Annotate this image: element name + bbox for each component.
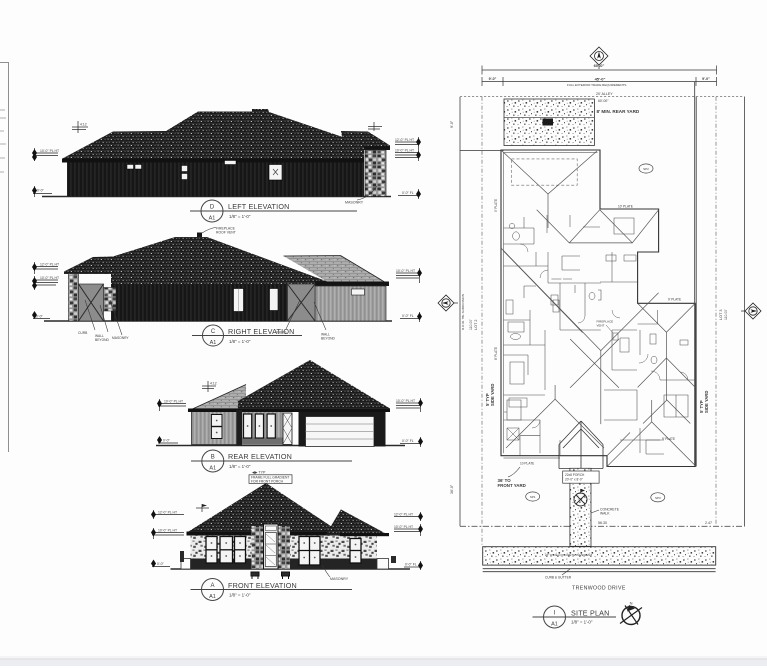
svg-text:60'-0": 60'-0" xyxy=(594,63,605,68)
svg-text:10 PLATE: 10 PLATE xyxy=(520,462,534,466)
svg-text:A1: A1 xyxy=(209,594,216,600)
svg-text:FRONT YARD: FRONT YARD xyxy=(498,483,526,488)
svg-text:A1: A1 xyxy=(209,216,216,222)
svg-text:9' PLATE: 9' PLATE xyxy=(668,298,681,302)
svg-text:10'-0" PL HT: 10'-0" PL HT xyxy=(40,149,59,153)
svg-text:0'-0" FL: 0'-0" FL xyxy=(402,439,414,443)
svg-text:110.00': 110.00' xyxy=(724,309,728,320)
svg-text:FULL EXTERIOR TRADE REQUIREMEN: FULL EXTERIOR TRADE REQUIREMENTS xyxy=(567,83,626,87)
svg-text:REAR ELEVATION: REAR ELEVATION xyxy=(228,452,292,461)
svg-text:4:12: 4:12 xyxy=(80,123,87,127)
svg-text:10'-0" PL HT: 10'-0" PL HT xyxy=(394,525,413,529)
svg-text:BEYOND: BEYOND xyxy=(95,338,110,342)
svg-text:10'-0" PL HT: 10'-0" PL HT xyxy=(40,276,59,280)
svg-text:10'-0" PL HT: 10'-0" PL HT xyxy=(396,269,415,273)
svg-text:CURB & GUTTER: CURB & GUTTER xyxy=(545,576,572,580)
svg-text:WALK: WALK xyxy=(600,512,610,516)
svg-text:2.47: 2.47 xyxy=(705,521,712,525)
svg-text:8' PLATE: 8' PLATE xyxy=(494,347,498,360)
svg-text:0'-0" FL: 0'-0" FL xyxy=(405,563,417,567)
svg-text:SIDE YARD: SIDE YARD xyxy=(490,384,495,406)
svg-text:N: N xyxy=(630,601,633,606)
svg-text:10'-0" PL HT: 10'-0" PL HT xyxy=(395,149,414,153)
svg-text:9'-0": 9'-0" xyxy=(450,120,454,128)
svg-text:1/8" = 1'-0": 1/8" = 1'-0" xyxy=(229,339,251,344)
svg-text:36'-0": 36'-0" xyxy=(450,484,454,494)
svg-text:1/8" = 1'-0": 1/8" = 1'-0" xyxy=(229,214,251,219)
svg-text:45'-0": 45'-0" xyxy=(595,77,606,82)
svg-text:MASONRY: MASONRY xyxy=(112,336,129,340)
svg-text:R.O.W. TBL SUBDIVISION: R.O.W. TBL SUBDIVISION xyxy=(461,294,465,330)
svg-text:9' PLATE: 9' PLATE xyxy=(662,437,675,441)
svg-text:20'-0" x 8'-0": 20'-0" x 8'-0" xyxy=(565,478,583,482)
svg-text:D: D xyxy=(210,205,215,211)
svg-text:MASONRY: MASONRY xyxy=(345,201,364,205)
svg-text:10'-0" PL HT: 10'-0" PL HT xyxy=(396,399,415,403)
svg-text:C: C xyxy=(211,329,216,335)
svg-text:1/8" = 1'-0": 1/8" = 1'-0" xyxy=(571,620,593,625)
svg-text:SIDE YARD: SIDE YARD xyxy=(704,391,709,413)
svg-text:20' ALLEY: 20' ALLEY xyxy=(596,92,613,96)
svg-text:9' PLATE: 9' PLATE xyxy=(494,199,498,212)
svg-text:A1: A1 xyxy=(551,622,558,628)
svg-text:ROOF VENT: ROOF VENT xyxy=(216,231,236,235)
svg-text:TRENWOOD DRIVE: TRENWOOD DRIVE xyxy=(572,586,626,592)
svg-text:CURB: CURB xyxy=(78,331,88,335)
svg-text:SITE PLAN: SITE PLAN xyxy=(571,609,610,618)
svg-text:1/8" = 1'-0": 1/8" = 1'-0" xyxy=(229,464,251,469)
svg-text:0'-0": 0'-0" xyxy=(163,439,171,443)
svg-text:A1: A1 xyxy=(210,340,217,346)
svg-text:12'-0" PL HT: 12'-0" PL HT xyxy=(40,263,59,267)
svg-text:SP2: SP2 xyxy=(643,167,649,171)
svg-text:◀▶ TYP: ◀▶ TYP xyxy=(252,471,266,475)
svg-text:0'-0" FL: 0'-0" FL xyxy=(402,191,414,195)
svg-text:0'-0": 0'-0" xyxy=(36,315,44,319)
svg-text:12'-0" PL HT: 12'-0" PL HT xyxy=(395,138,414,142)
svg-text:MASONRY: MASONRY xyxy=(330,577,349,581)
svg-text:BEYOND: BEYOND xyxy=(321,337,336,341)
svg-text:9'-0": 9'-0" xyxy=(489,77,497,81)
svg-text:110.00': 110.00' xyxy=(469,319,473,330)
svg-text:A: A xyxy=(210,583,214,589)
svg-text:A1: A1 xyxy=(209,466,216,472)
svg-text:56.30: 56.30 xyxy=(598,521,607,525)
svg-text:LEFT ELEVATION: LEFT ELEVATION xyxy=(228,202,290,211)
svg-text:60'-00": 60'-00" xyxy=(598,99,609,103)
svg-text:10'-0" PL HT: 10'-0" PL HT xyxy=(158,529,177,533)
svg-text:22x8 PORCH: 22x8 PORCH xyxy=(565,473,585,477)
svg-text:RIGHT ELEVATION: RIGHT ELEVATION xyxy=(228,327,295,336)
svg-text:0'-0" FL: 0'-0" FL xyxy=(402,314,414,318)
svg-text:10'-0" PL HT: 10'-0" PL HT xyxy=(164,400,183,404)
svg-text:0'-0": 0'-0" xyxy=(37,189,45,193)
svg-text:LOT 3: LOT 3 xyxy=(719,310,723,320)
svg-text:12'-0" PL HT: 12'-0" PL HT xyxy=(158,511,177,515)
svg-text:1/8" = 1'-0": 1/8" = 1'-0" xyxy=(229,593,251,598)
svg-text:10' PLATE: 10' PLATE xyxy=(618,205,633,209)
svg-text:FOR FRONT PORCH: FOR FRONT PORCH xyxy=(251,479,284,483)
svg-text:VENT: VENT xyxy=(597,324,605,328)
svg-text:SP1: SP1 xyxy=(530,495,536,499)
svg-text:27' WIDE CONCRETE PAVEMENT: 27' WIDE CONCRETE PAVEMENT xyxy=(545,553,592,557)
svg-text:FRONT ELEVATION: FRONT ELEVATION xyxy=(228,581,297,590)
svg-text:LOT 2: LOT 2 xyxy=(474,320,478,330)
svg-text:12'-0" PL HT: 12'-0" PL HT xyxy=(394,513,413,517)
svg-text:8' MIN. REAR YARD: 8' MIN. REAR YARD xyxy=(597,109,640,114)
svg-text:B: B xyxy=(211,455,215,461)
svg-text:4:12: 4:12 xyxy=(210,382,217,386)
svg-text:SP3: SP3 xyxy=(655,496,661,500)
svg-text:9'-0": 9'-0" xyxy=(702,77,710,81)
svg-text:0'-0": 0'-0" xyxy=(157,562,165,566)
